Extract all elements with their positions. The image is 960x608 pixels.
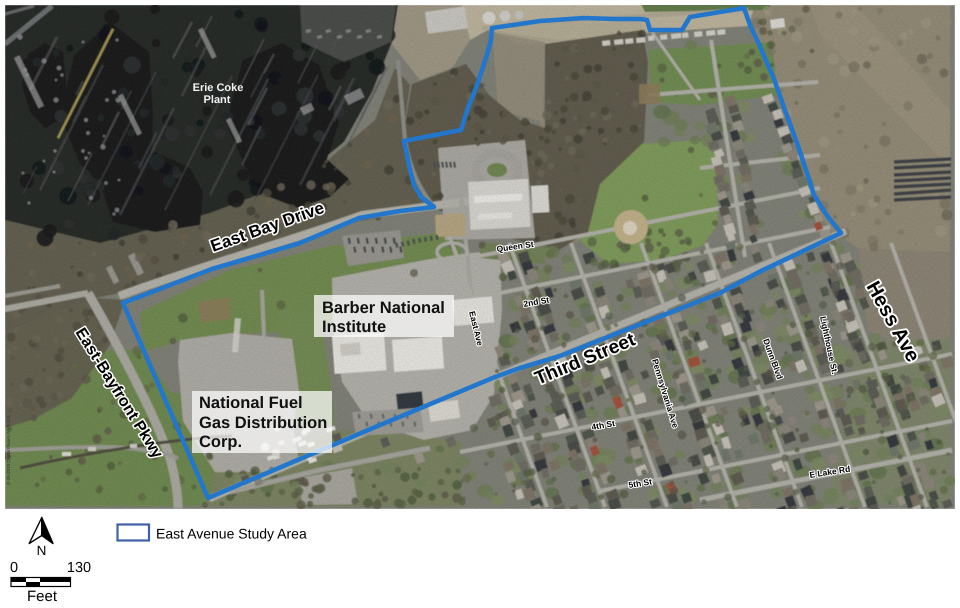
svg-text:Institute: Institute [322, 318, 386, 336]
svg-text:Corp.: Corp. [199, 433, 242, 451]
svg-text:Plant: Plant [204, 94, 231, 106]
svg-text:Barber National: Barber National [322, 299, 445, 317]
svg-text:National Fuel: National Fuel [199, 394, 303, 412]
svg-text:Feet: Feet [27, 588, 58, 605]
svg-text:130: 130 [67, 560, 91, 576]
svg-text:© 09-2010 Digital Planet, NYS: © 09-2010 Digital Planet, NYS GIS [6, 415, 11, 485]
svg-text:East Avenue Study Area: East Avenue Study Area [156, 526, 307, 542]
svg-text:Gas Distribution: Gas Distribution [199, 414, 327, 432]
svg-text:Erie Coke: Erie Coke [193, 82, 244, 94]
svg-text:N: N [37, 543, 47, 558]
svg-text:0: 0 [10, 560, 18, 576]
